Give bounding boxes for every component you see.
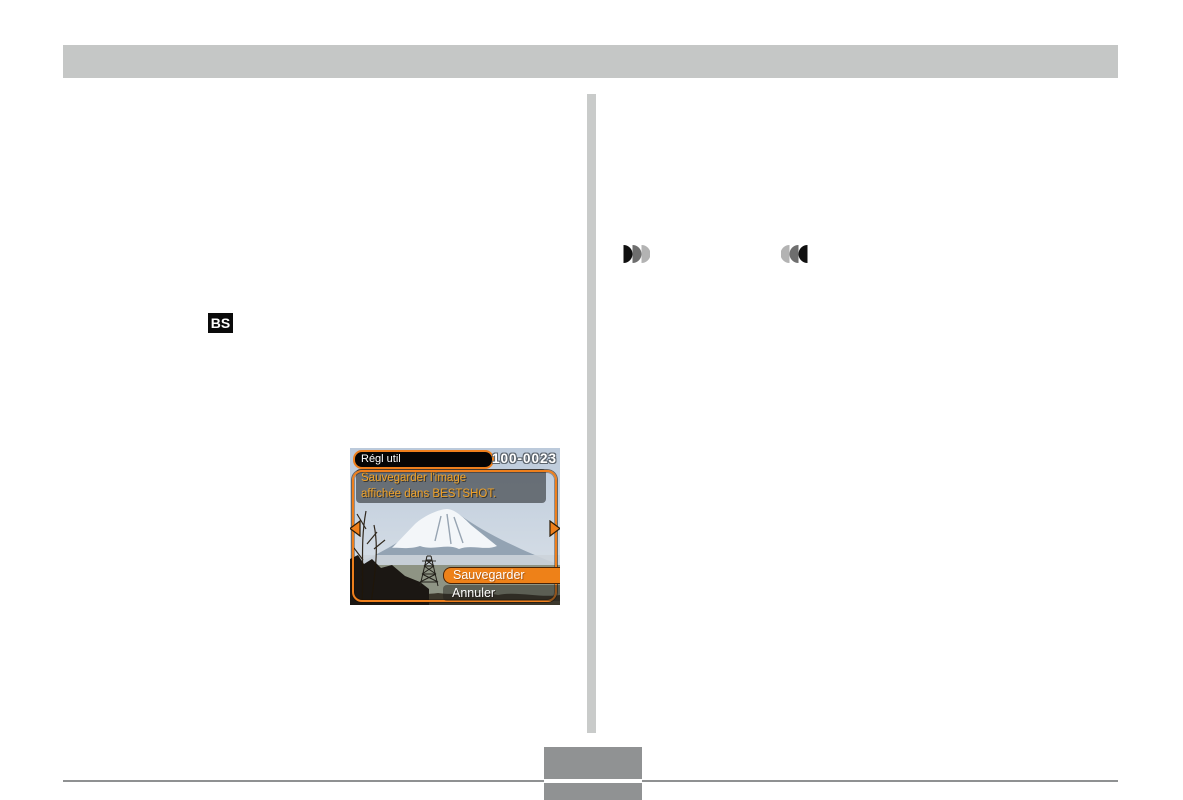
- footer-rule-left: [63, 780, 544, 782]
- page-header-bar: [63, 45, 1118, 78]
- bestshot-button-icon: BS: [208, 313, 233, 333]
- menu-item-sauvegarder: Sauvegarder: [443, 567, 560, 584]
- footer-rule-right: [642, 780, 1118, 782]
- manual-page: BS: [0, 0, 1183, 800]
- zoom-telephoto-icon: [623, 245, 650, 263]
- bestshot-button-label: BS: [211, 315, 230, 331]
- image-number: 100-0023: [492, 451, 557, 466]
- mode-title-label: Régl util: [361, 453, 401, 465]
- page-number-box-top: [544, 747, 642, 779]
- zoom-wide-icon: [781, 245, 808, 263]
- scroll-right-arrow-icon: [549, 520, 560, 537]
- menu-item-annuler: Annuler: [443, 585, 560, 601]
- menu-item-annuler-label: Annuler: [452, 586, 495, 600]
- menu-item-sauvegarder-label: Sauvegarder: [453, 568, 525, 582]
- camera-lcd-screenshot: Régl util 100-0023 Sauvegarder l'image a…: [350, 448, 560, 605]
- column-divider: [587, 94, 596, 733]
- mode-title-pill: Régl util: [353, 450, 494, 469]
- scroll-left-arrow-icon: [350, 520, 361, 537]
- page-number-box-bottom: [544, 783, 642, 800]
